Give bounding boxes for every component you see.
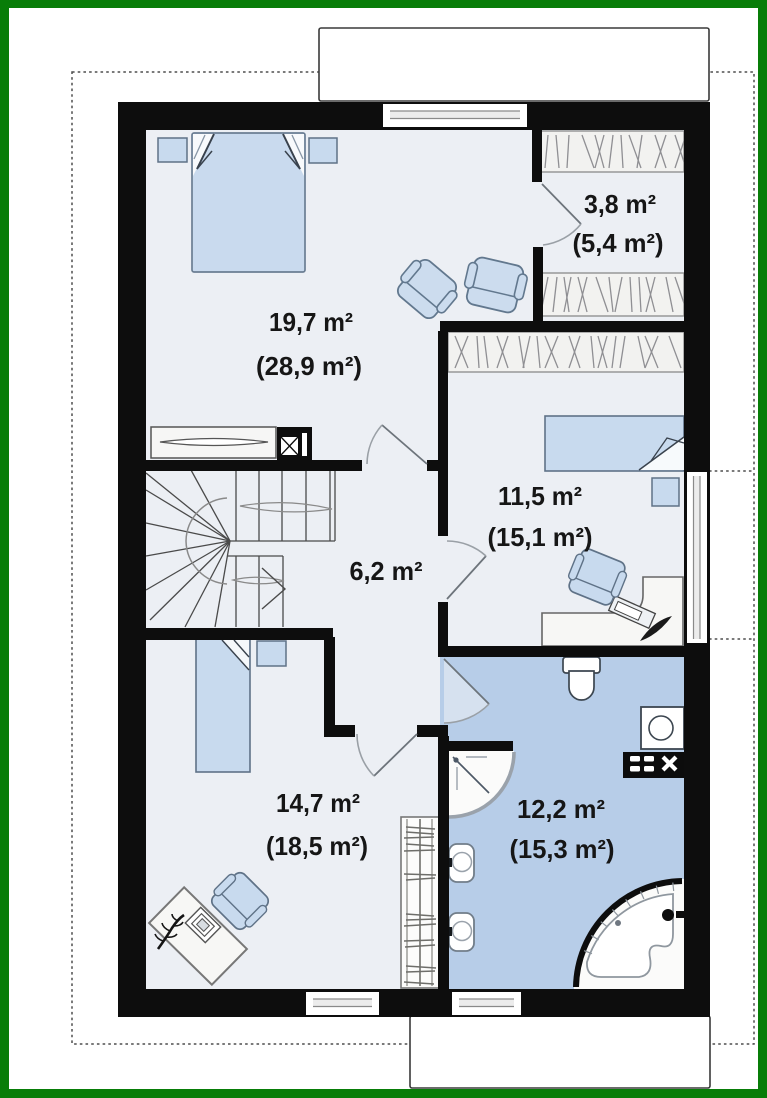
- svg-text:6,2 m²: 6,2 m²: [350, 556, 423, 586]
- svg-text:3,8 m²: 3,8 m²: [584, 189, 656, 219]
- svg-text:(15,1 m²): (15,1 m²): [488, 522, 593, 552]
- svg-text:14,7 m²: 14,7 m²: [276, 788, 360, 818]
- svg-text:19,7 m²: 19,7 m²: [269, 307, 353, 337]
- svg-text:12,2 m²: 12,2 m²: [517, 794, 605, 824]
- svg-text:(5,4 m²): (5,4 m²): [573, 228, 664, 258]
- svg-text:(28,9 m²): (28,9 m²): [256, 351, 362, 381]
- svg-text:(15,3 m²): (15,3 m²): [510, 834, 615, 864]
- svg-text:11,5 m²: 11,5 m²: [498, 481, 582, 511]
- svg-text:(18,5 m²): (18,5 m²): [266, 831, 368, 861]
